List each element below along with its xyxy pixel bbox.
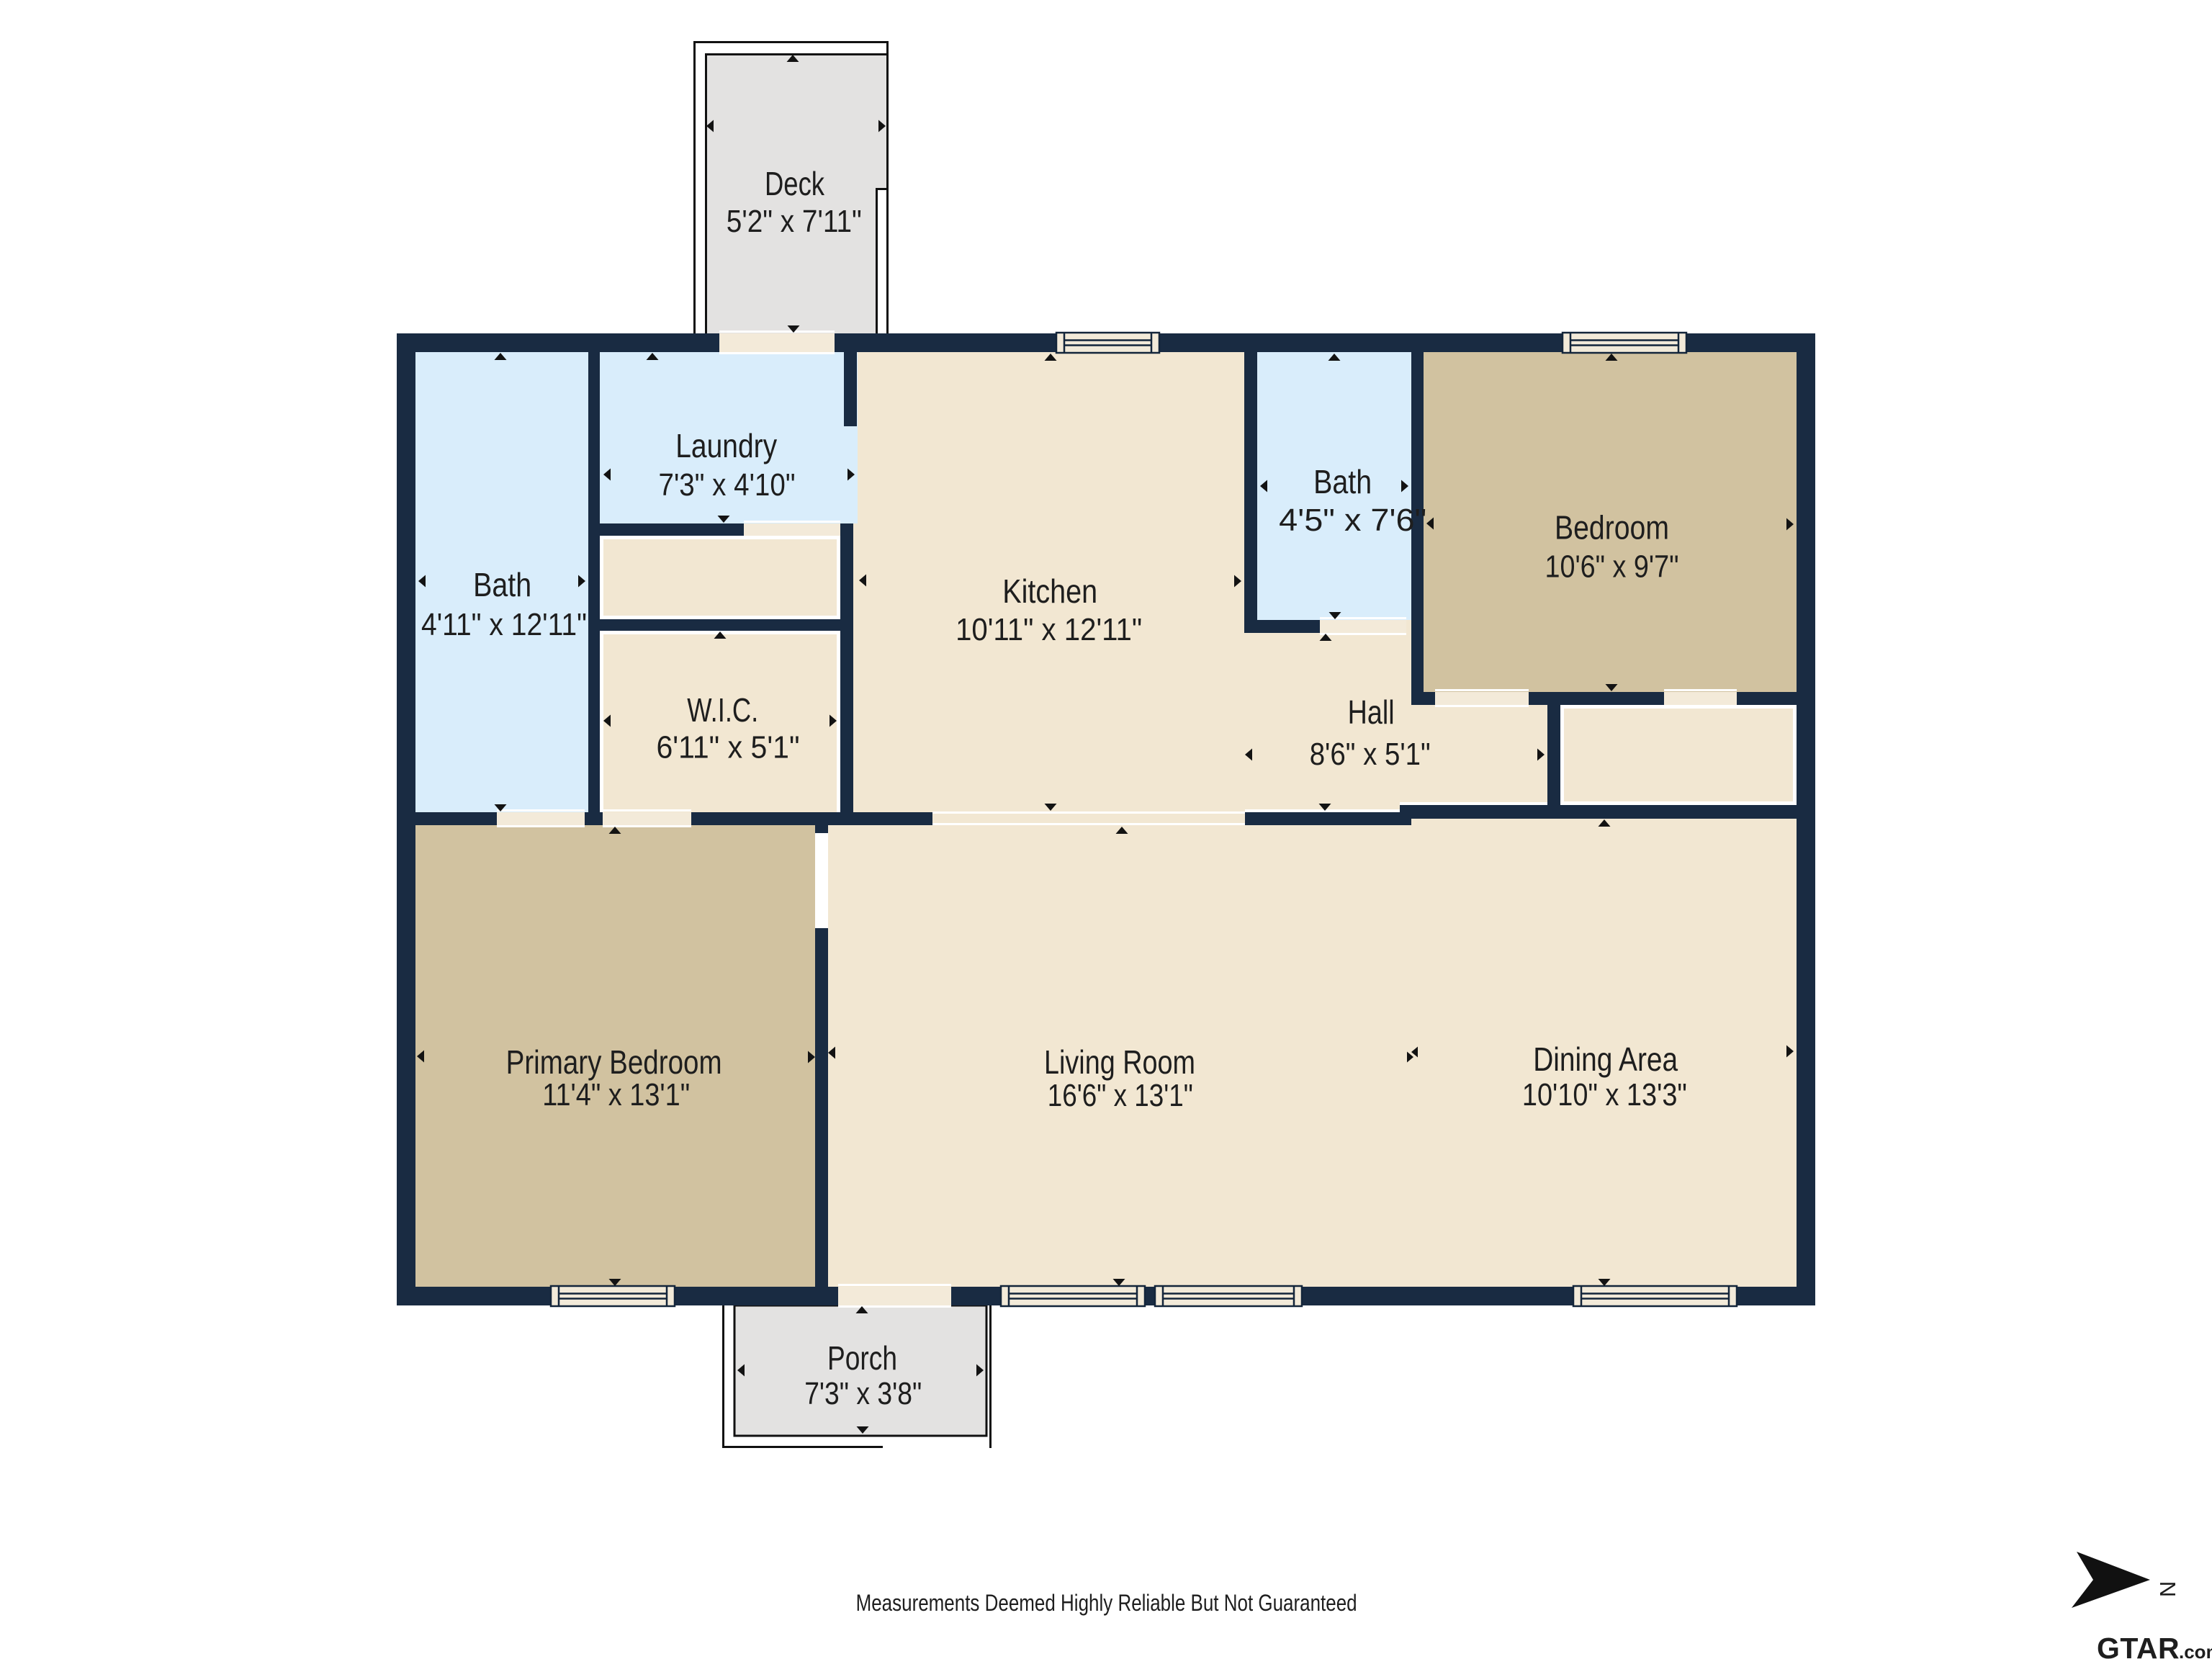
svg-text:Deck: Deck (765, 165, 825, 202)
svg-text:6'11" x 5'1": 6'11" x 5'1" (657, 730, 800, 765)
svg-text:16'6" x 13'1": 16'6" x 13'1" (1048, 1078, 1193, 1113)
svg-text:Kitchen: Kitchen (1002, 572, 1097, 610)
svg-text:5'2" x 7'11": 5'2" x 7'11" (727, 204, 862, 239)
svg-text:Hall: Hall (1348, 693, 1395, 731)
svg-text:10'11" x 12'11": 10'11" x 12'11" (956, 612, 1142, 647)
svg-text:Dining Area: Dining Area (1533, 1040, 1678, 1078)
svg-text:7'3" x 4'10": 7'3" x 4'10" (659, 467, 796, 503)
svg-text:4'11" x 12'11": 4'11" x 12'11" (421, 607, 587, 642)
svg-text:W.I.C.: W.I.C. (687, 691, 758, 729)
svg-text:10'10" x 13'3": 10'10" x 13'3" (1522, 1077, 1687, 1112)
svg-text:7'3" x 3'8": 7'3" x 3'8" (804, 1376, 922, 1411)
svg-text:.com: .com (2179, 1641, 2212, 1659)
svg-text:10'6" x 9'7": 10'6" x 9'7" (1545, 549, 1679, 585)
svg-text:Porch: Porch (827, 1339, 897, 1377)
svg-text:N: N (2155, 1581, 2180, 1597)
svg-text:Bath: Bath (1313, 463, 1372, 500)
svg-text:Primary Bedroom: Primary Bedroom (506, 1043, 722, 1081)
svg-text:Living Room: Living Room (1044, 1043, 1195, 1081)
svg-text:4'5" x 7'6": 4'5" x 7'6" (1279, 503, 1426, 538)
svg-text:GTAR: GTAR (2097, 1632, 2180, 1659)
svg-text:8'6" x 5'1": 8'6" x 5'1" (1310, 737, 1431, 772)
svg-text:Bath: Bath (473, 566, 531, 603)
svg-text:Measurements Deemed Highly Rel: Measurements Deemed Highly Reliable But … (856, 1590, 1357, 1616)
svg-text:11'4" x 13'1": 11'4" x 13'1" (542, 1077, 690, 1112)
svg-text:Laundry: Laundry (675, 427, 777, 464)
svg-text:Bedroom: Bedroom (1555, 509, 1669, 547)
